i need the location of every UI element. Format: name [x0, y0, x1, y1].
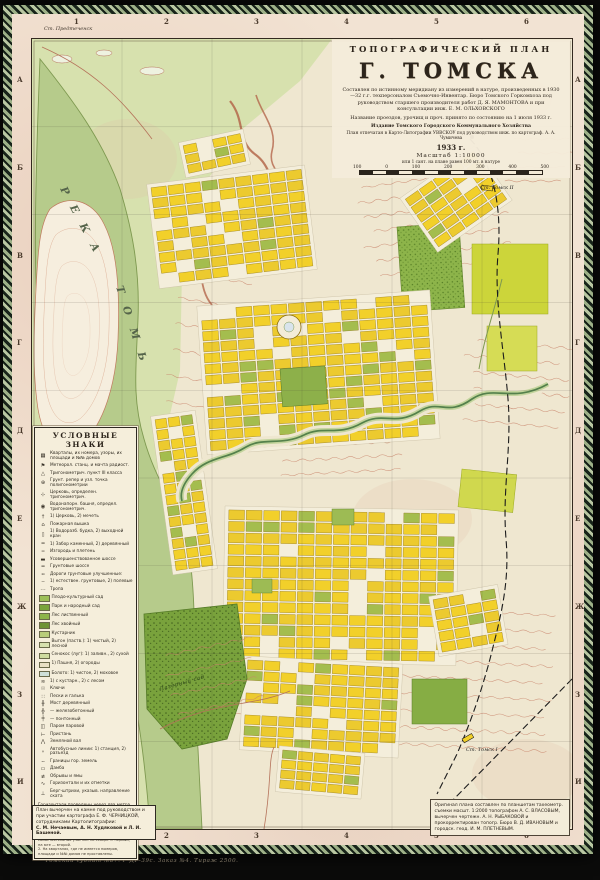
- legend-label: Горизонтали и их отметки: [50, 782, 110, 787]
- grid-row-label-right: З: [575, 690, 580, 699]
- title-block: ТОПОГРАФИЧЕСКИЙ ПЛАН Г. ТОМСКА Составлен…: [332, 40, 570, 178]
- legend-row: ┄1) естествен. грунтовые, 2) полевые: [38, 580, 133, 585]
- grid-row-label-left: Д: [17, 426, 23, 435]
- rampart-icon: ⋀: [38, 740, 48, 745]
- legend-row: Сенокос (луг): 1) заливн., 2) сухой: [38, 653, 133, 660]
- legend-row: ◫Паром паровой: [38, 725, 133, 730]
- scale-tick-value: 300: [476, 165, 484, 170]
- credits-right-text: Оригинал плана составлен по планшетам та…: [435, 803, 566, 833]
- tower-trig-icon: ◉: [38, 505, 48, 510]
- legend-label: Усовершенствованное шоссе: [50, 558, 116, 563]
- cliff-icon: ≢: [38, 775, 48, 780]
- legend-row: ⋯Тропа: [38, 588, 133, 593]
- field-icon: [39, 662, 50, 669]
- grid-col-label-top: 3: [254, 17, 259, 26]
- grid-col-label-top: 2: [164, 17, 169, 26]
- scale-tick-value: 400: [508, 165, 516, 170]
- bridge-pontoon-icon: ╪: [38, 717, 48, 722]
- legend-row: Парк и народный сад: [38, 604, 133, 611]
- park-icon: [39, 604, 50, 611]
- legend-row: Плодо-культурный сад: [38, 595, 133, 602]
- trig-point-icon: △: [38, 472, 48, 477]
- grid-row-label-left: А: [17, 75, 23, 84]
- bergstrich-icon: ⊥: [38, 792, 48, 797]
- dam-icon: ▭: [38, 767, 48, 772]
- paper-margin: Ст. Предтеченск Р Е К АТ О М ЬСт. Томск …: [12, 14, 584, 845]
- reper-icon: ⊕: [38, 481, 48, 486]
- legend-label: Земляной вал: [50, 740, 81, 745]
- grid-row-label-left: Ж: [17, 602, 26, 611]
- legend-label: Пожарная вышка: [50, 523, 89, 528]
- legend-row: †1) Церковь, 2) мечеть: [38, 515, 133, 520]
- legend-label: Грунтовые шоссе: [50, 565, 89, 570]
- grid-row-label-right: Г: [575, 338, 580, 347]
- legend-row: ┅Изгородь и плетень: [38, 550, 133, 555]
- road-gravel-icon: ━: [38, 565, 48, 570]
- legend-label: Дороги грунтовые улучшенные:: [50, 573, 122, 578]
- legend-label: Водонапорн. башня, определ. тригонометри…: [50, 503, 133, 513]
- map-kicker: ТОПОГРАФИЧЕСКИЙ ПЛАН: [337, 45, 565, 55]
- legend-row: ☉Ключи: [38, 687, 133, 692]
- legend-label: 1) с кустарн., 2) с лесом: [50, 680, 104, 685]
- legend-label: 1) Пашня, 2) огороды: [52, 662, 100, 667]
- meteo-mast-icon: ⚑: [38, 464, 48, 469]
- legend-row: Болото: 1) чистое, 2) моховое: [38, 671, 133, 678]
- scale-bar: [359, 170, 543, 175]
- grid-row-label-right: И: [575, 777, 582, 786]
- legend-row: ⊹Церковь, определен. тригонометрич.: [38, 491, 133, 501]
- grid-col-label-top: 5: [434, 17, 439, 26]
- legend-label: Лес лиственный: [52, 614, 89, 619]
- legend-row: ━Грунтовые шоссе: [38, 565, 133, 570]
- legend-panel: УСЛОВНЫЕ ЗНАКИ ▦Кварталы, их номера, узо…: [34, 427, 137, 859]
- legend-row: ▯1) Водоразб. будка, 2) выходной кран: [38, 530, 133, 540]
- contour-icon: ∿: [38, 782, 48, 787]
- legend-label: Ключи: [50, 687, 65, 692]
- legend-row: ⚑Метеорол. станц. и мачта радиост.: [38, 464, 133, 469]
- scale-tick-value: 100: [412, 165, 420, 170]
- legend-label: Метеорол. станц. и мачта радиост.: [50, 464, 129, 469]
- grid-row-label-right: Е: [575, 514, 580, 523]
- credits-left-text: План вычерчен на камне под руководством …: [36, 808, 152, 826]
- orchard-icon: [39, 595, 50, 602]
- legend-row: ╬— железобетонный: [38, 710, 133, 715]
- map-title: Г. ТОМСКА: [337, 58, 565, 83]
- legend-row: ▦Кварталы, их номера, узоры, их площади …: [38, 452, 133, 462]
- map-label: Ст. Томск I: [466, 747, 499, 753]
- bridge-wood-icon: ╫: [38, 702, 48, 707]
- church-icon: †: [38, 515, 48, 520]
- meadow-icon: [39, 653, 50, 660]
- legend-label: Паром паровой: [50, 725, 84, 730]
- legend-label: Пески и галька: [50, 695, 84, 700]
- title-paragraph-2: Название проездов, урочищ и проч. принят…: [341, 115, 561, 121]
- publisher-line: Издание Томского Городского Коммунальног…: [337, 124, 565, 129]
- legend-label: Изгородь и плетень: [50, 550, 95, 555]
- hedge-icon: ┅: [38, 550, 48, 555]
- scanned-map-photo: { "margin": { "top_numbers": ["1","2","3…: [0, 0, 600, 880]
- legend-row: ╫Мост деревянный: [38, 702, 133, 707]
- legend-label: — железобетонный: [50, 710, 94, 715]
- credits-cartographers: План вычерчен на камне под руководством …: [32, 805, 156, 840]
- map-label: Ст. Томск II: [480, 185, 515, 191]
- bridge-concrete-icon: ╬: [38, 710, 48, 715]
- legend-row: ∷Пески и галька: [38, 695, 133, 700]
- sand-icon: ∷: [38, 695, 48, 700]
- legend-label: Дамба: [50, 767, 64, 772]
- legend-label: Выгон (паств.): 1) чистый, 2) лесной: [52, 640, 134, 650]
- legend-label: Грунт. репер и узл. точка полигонометрии: [50, 479, 133, 489]
- print-note: План отпечатан в Карто-Литографии УВВСКО…: [337, 131, 565, 141]
- grid-row-label-left: Б: [17, 163, 23, 172]
- grid-row-label-right: Ж: [575, 602, 584, 611]
- legend-label: Плодо-культурный сад: [52, 596, 104, 601]
- swamp-icon: [39, 671, 50, 678]
- legend-row: ⌂Пожарная вышка: [38, 523, 133, 528]
- fire-tower-icon: ⌂: [38, 523, 48, 528]
- forest-conifer-icon: [39, 622, 50, 629]
- legend-row: △Тригонометрич. пункт III класса: [38, 472, 133, 477]
- margin-station-label: Ст. Предтеченск: [44, 26, 92, 32]
- forest-deciduous-icon: [39, 613, 50, 620]
- ferry-icon: ◫: [38, 725, 48, 730]
- sheet-decorative-border: Ст. Предтеченск Р Е К АТ О М ЬСт. Томск …: [3, 5, 593, 854]
- church-trig-icon: ⊹: [38, 493, 48, 498]
- legend-row: Кустарник: [38, 631, 133, 638]
- road-natural-icon: ┄: [38, 580, 48, 585]
- legend-row: ≢Обрывы и ямы: [38, 775, 133, 780]
- legend-fine-note: 2. На кварталах, где не имеется номеров,…: [38, 847, 133, 856]
- pier-icon: ⊢: [38, 733, 48, 738]
- legend-row: ⊥Берг-штрихи, указыв. направление ската: [38, 790, 133, 800]
- legend-label: 1) Забор каменный, 2) деревянный: [50, 543, 129, 548]
- pasture-icon: [39, 642, 50, 649]
- legend-label: 1) Церковь, 2) мечеть: [50, 515, 99, 520]
- legend-label: Церковь, определен. тригонометрич.: [50, 491, 133, 501]
- map-frame: Р Е К АТ О М ЬСт. Томск IIСт. Томск IЛаг…: [31, 38, 573, 830]
- year-label: 1933 г.: [337, 143, 565, 152]
- grid-col-label-bottom: 3: [254, 831, 259, 840]
- grid-row-label-left: В: [17, 251, 23, 260]
- block-grid-icon: ▦: [38, 454, 48, 459]
- fence-icon: ═: [38, 542, 48, 547]
- shrub-icon: [39, 631, 50, 638]
- grid-row-label-left: Г: [17, 338, 22, 347]
- legend-label: Обрывы и ямы: [50, 775, 82, 780]
- grid-row-label-right: Б: [575, 163, 581, 172]
- legend-label: Тропа: [50, 588, 63, 593]
- legend-label: Болото: 1) чистое, 2) моховое: [52, 672, 119, 677]
- scale-tick-value: 100: [353, 165, 361, 170]
- legend-row: ⊢Пристань: [38, 733, 133, 738]
- legend-row: ═1) Забор каменный, 2) деревянный: [38, 542, 133, 547]
- legend-row: Лес лиственный: [38, 613, 133, 620]
- path-icon: ⋯: [38, 588, 48, 593]
- legend-row: ⋀Земляной вал: [38, 740, 133, 745]
- grid-col-label-top: 6: [524, 17, 529, 26]
- legend-row: ∿Горизонтали и их отметки: [38, 782, 133, 787]
- legend-row: ◉Водонапорн. башня, определ. тригонометр…: [38, 503, 133, 513]
- bus-line-icon: ∘: [38, 750, 48, 755]
- grid-col-label-top: 1: [74, 17, 79, 26]
- credits-left-names: С. М. Нечаевым, А. Н. Худяковой и Л. И. …: [36, 826, 152, 838]
- scale-tick-value: 200: [444, 165, 452, 170]
- swamp-wooded-icon: ≋: [38, 680, 48, 685]
- scale-tick-value: 0: [385, 165, 388, 170]
- legend-label: Мост деревянный: [50, 702, 90, 707]
- legend-row: ╍Дороги грунтовые улучшенные:: [38, 573, 133, 578]
- legend-rows: ▦Кварталы, их номера, узоры, их площади …: [38, 452, 133, 799]
- grid-row-label-right: Д: [575, 426, 581, 435]
- hydrant-icon: ▯: [38, 533, 48, 538]
- legend-label: 1) Водоразб. будка, 2) выходной кран: [50, 530, 133, 540]
- legend-row: ⊕Грунт. репер и узл. точка полигонометри…: [38, 479, 133, 489]
- title-paragraph-1: Составлен по истинному меридиану из изме…: [341, 87, 561, 112]
- legend-row: ≋1) с кустарн., 2) с лесом: [38, 680, 133, 685]
- legend-label: Парк и народный сад: [52, 605, 100, 610]
- credits-original-plan: Оригинал плана составлен по планшетам та…: [430, 799, 570, 836]
- legend-row: ∘Автобусные линии: 1) станция, 2) разъез…: [38, 748, 133, 758]
- legend-label: Тригонометрич. пункт III класса: [50, 472, 122, 477]
- springs-icon: ☉: [38, 687, 48, 692]
- road-paved-icon: ▬: [38, 558, 48, 563]
- legend-label: Автобусные линии: 1) станция, 2) разъезд: [50, 748, 133, 758]
- grid-row-label-left: З: [17, 690, 22, 699]
- grid-col-label-top: 4: [344, 17, 349, 26]
- legend-row: ╪— понтонный: [38, 717, 133, 722]
- legend-label: Сенокос (луг): 1) заливн., 2) сухой: [52, 653, 129, 658]
- grid-row-label-left: Е: [17, 514, 22, 523]
- legend-row: ▬Усовершенствованное шоссе: [38, 558, 133, 563]
- road-improved-icon: ╍: [38, 573, 48, 578]
- legend-row: 1) Пашня, 2) огороды: [38, 662, 133, 669]
- legend-label: Кустарник: [52, 632, 76, 637]
- legend-label: Берг-штрихи, указыв. направление ската: [50, 790, 133, 800]
- legend-label: 1) естествен. грунтовые, 2) полевые: [50, 580, 133, 585]
- legend-label: Границы гор. земель: [50, 760, 97, 765]
- legend-row: ▭Дамба: [38, 767, 133, 772]
- legend-label: Лес хвойный: [52, 623, 81, 628]
- legend-title: УСЛОВНЫЕ ЗНАКИ: [38, 431, 133, 449]
- legend-row: ╌Границы гор. земель: [38, 760, 133, 765]
- grid-row-label-left: И: [17, 777, 24, 786]
- legend-row: Выгон (паств.): 1) чистый, 2) лесной: [38, 640, 133, 650]
- scale-tick-value: 500: [541, 165, 549, 170]
- grid-row-label-right: А: [575, 75, 581, 84]
- legend-row: Лес хвойный: [38, 622, 133, 629]
- grid-col-label-bottom: 4: [344, 831, 349, 840]
- legend-label: Пристань: [50, 733, 71, 738]
- legend-label: — понтонный: [50, 718, 81, 723]
- legend-label: Кварталы, их номера, узоры, их площади и…: [50, 452, 133, 462]
- boundary-icon: ╌: [38, 760, 48, 765]
- grid-row-label-right: В: [575, 251, 581, 260]
- grid-col-label-bottom: 2: [164, 831, 169, 840]
- scale-sublabel: или 1 сант. на плане равен 100 мт. в нат…: [337, 159, 565, 164]
